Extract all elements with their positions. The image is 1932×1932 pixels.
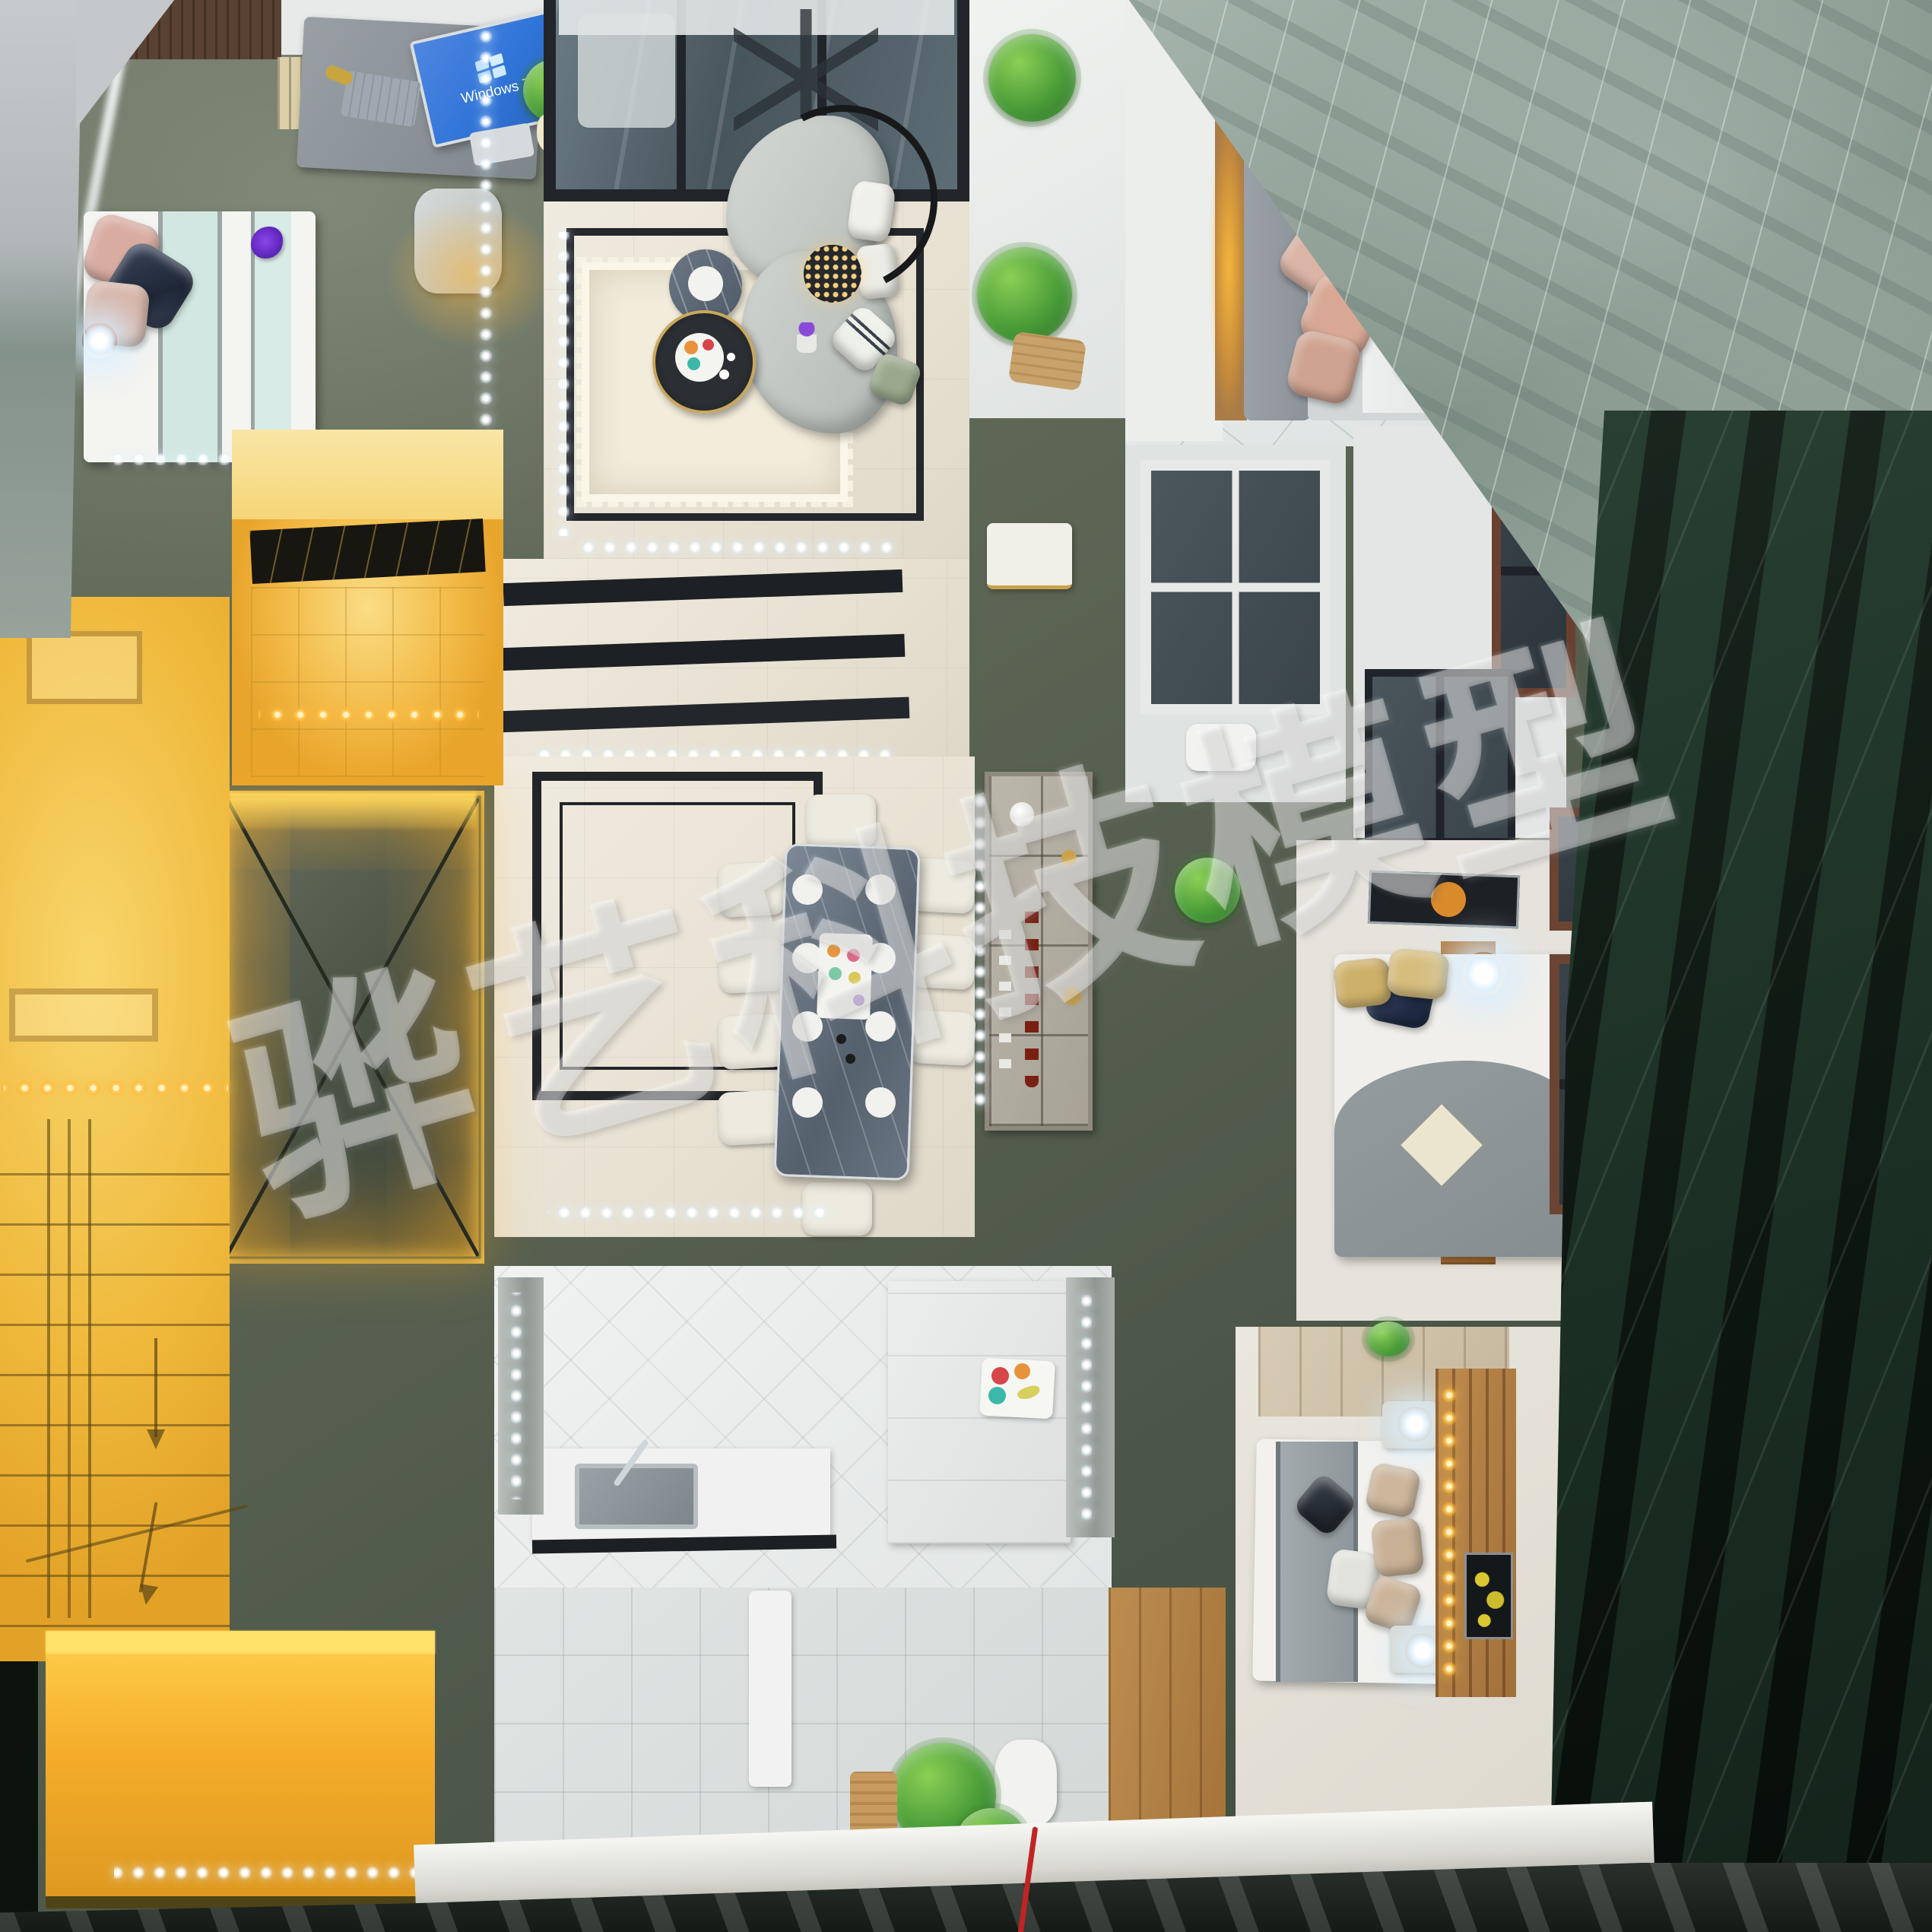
stairwell-door-upper xyxy=(27,631,142,704)
macaron-mint xyxy=(829,967,842,980)
master-small-plant xyxy=(1367,1321,1410,1356)
master-warm-led-column xyxy=(1439,1380,1459,1684)
dining-chair-end-top xyxy=(806,795,876,848)
dining-chair-l1 xyxy=(717,861,785,918)
stairwell-led-row xyxy=(4,1078,228,1098)
terrace-plant-2 xyxy=(977,247,1072,342)
stair-arrow-down-head xyxy=(137,1584,158,1607)
bedroom1-warm-glow xyxy=(1210,113,1247,420)
macaron-pink xyxy=(847,949,860,962)
bedroom2-chandelier xyxy=(1461,952,1505,996)
corridor-console-gold xyxy=(987,523,1072,589)
bathroom-tile-grid xyxy=(251,587,484,777)
terrace-stool xyxy=(1008,332,1087,392)
wine-gold-decor-2 xyxy=(1063,987,1081,1005)
bedroom2-pillow-gold-2 xyxy=(1386,947,1450,1001)
kitchen-fruit-red xyxy=(991,1367,1009,1385)
bedroom2-tv-art-circle xyxy=(1431,882,1466,917)
wine-cabinet-ball xyxy=(1010,802,1034,826)
master-crystal-lamp-top xyxy=(1397,1407,1432,1442)
coffee-table-small-plate xyxy=(688,266,723,301)
arc-lamp-head xyxy=(804,245,861,303)
macaron-orange xyxy=(827,944,840,957)
dining-center-tray xyxy=(817,933,873,1020)
dining-led-bottom xyxy=(547,1206,836,1220)
kitchen-pillar-right-led xyxy=(1081,1293,1092,1522)
bottomleft-led-row xyxy=(114,1864,418,1881)
dining-plate-7 xyxy=(865,1011,896,1042)
balcony-partition xyxy=(749,1591,792,1787)
study-led-strip-right xyxy=(479,30,493,426)
stair-arrow-up xyxy=(154,1338,157,1437)
balcony-chair-silhouette xyxy=(578,14,675,128)
monitor-os-label: Windows 7 xyxy=(460,75,532,107)
bedroom2-pillow-gold-1 xyxy=(1333,956,1392,1009)
dining-chair-l3 xyxy=(717,1014,785,1070)
study-bed-teal-band-1 xyxy=(158,211,222,462)
elevator-shaft xyxy=(220,791,484,1264)
stair-arrow-up-head xyxy=(147,1429,165,1449)
dining-plate-4 xyxy=(792,1087,823,1118)
master-pillow-beige-2 xyxy=(1370,1517,1424,1578)
master-artwork xyxy=(1464,1553,1513,1639)
dining-dark-item-1 xyxy=(836,1034,846,1044)
terrace-plant-1 xyxy=(988,34,1076,122)
dining-chair-r3 xyxy=(908,1010,976,1066)
bathroom-led-warm xyxy=(259,706,479,724)
fruit-orange xyxy=(684,341,698,354)
dining-dark-item-2 xyxy=(845,1054,855,1064)
dining-plate-8 xyxy=(865,1087,896,1118)
kitchen-fruit-orange xyxy=(1014,1363,1030,1379)
fruit-red xyxy=(703,339,714,351)
elevator-top-glow xyxy=(228,792,477,829)
fruit-teal xyxy=(687,357,700,370)
bottomleft-bright-edge xyxy=(46,1631,435,1654)
stairwell-door-lower xyxy=(9,988,158,1042)
wine-cabinet-led xyxy=(975,787,985,1114)
entry-plant xyxy=(1175,858,1240,923)
table-marble-right xyxy=(1551,411,1932,1932)
closet-black-window xyxy=(1365,669,1515,845)
dining-chair-l2 xyxy=(717,937,785,994)
kitchen-pillar-left-led xyxy=(511,1293,522,1499)
living-led-bottom xyxy=(578,541,897,554)
fruit-plate-living xyxy=(675,333,724,382)
elevator-x-mark xyxy=(220,791,484,1264)
stair-plan-steps xyxy=(0,1133,230,1627)
wine-plates xyxy=(999,916,1011,1068)
dining-plate-5 xyxy=(865,874,896,905)
dining-chair-r2 xyxy=(908,934,976,990)
stair-plan-rail xyxy=(47,1119,91,1618)
tea-cup-1 xyxy=(719,370,729,379)
bathroom2-fixture xyxy=(1186,724,1256,771)
vase-purple-flowers xyxy=(797,322,817,353)
kitchen-sink xyxy=(575,1464,698,1529)
bathroom-yellow-ceiling xyxy=(232,430,503,519)
kitchen-fruit-teal xyxy=(988,1387,1006,1404)
wine-bottles xyxy=(1025,897,1039,1087)
photo-scale-model-apartment: Windows 7 xyxy=(0,0,1932,1932)
wine-gold-decor-1 xyxy=(1061,850,1077,865)
tea-cup-2 xyxy=(727,353,735,361)
dining-plate-1 xyxy=(792,874,823,905)
living-led-left xyxy=(557,232,569,536)
wall-gray-left xyxy=(0,0,82,638)
bathroom2-glass-unit xyxy=(1140,460,1331,715)
dining-flowers xyxy=(853,995,864,1006)
study-crystal-lamp xyxy=(82,323,117,358)
macaron-yellow xyxy=(849,972,861,984)
